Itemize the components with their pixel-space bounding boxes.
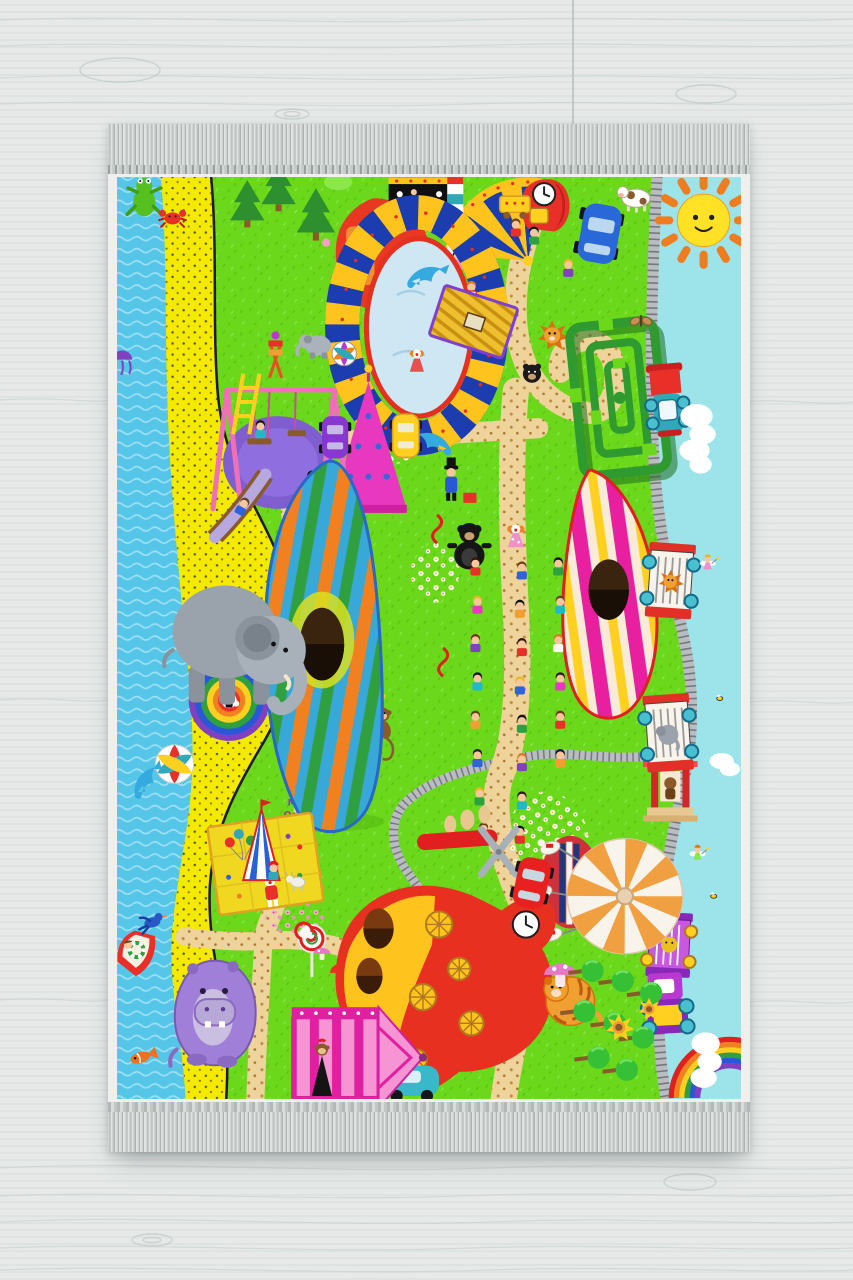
beach-ball — [155, 745, 195, 783]
product-photo: A B C D E F G H I K M O — [0, 0, 853, 1280]
rug-print: A B C D E F G H I K M O — [108, 174, 750, 1102]
yellow-car — [390, 414, 422, 457]
fringe-top — [108, 124, 750, 174]
bear-cub — [523, 364, 541, 383]
fringe-bottom — [108, 1102, 750, 1152]
purple-car — [319, 416, 351, 458]
striped-ball — [332, 341, 357, 365]
rug-artwork: A B C D E F G H I K M O — [114, 174, 744, 1102]
play-rug: A B C D E F G H I K M O — [108, 124, 750, 1152]
carousel — [529, 836, 682, 954]
podium-box — [463, 493, 476, 503]
